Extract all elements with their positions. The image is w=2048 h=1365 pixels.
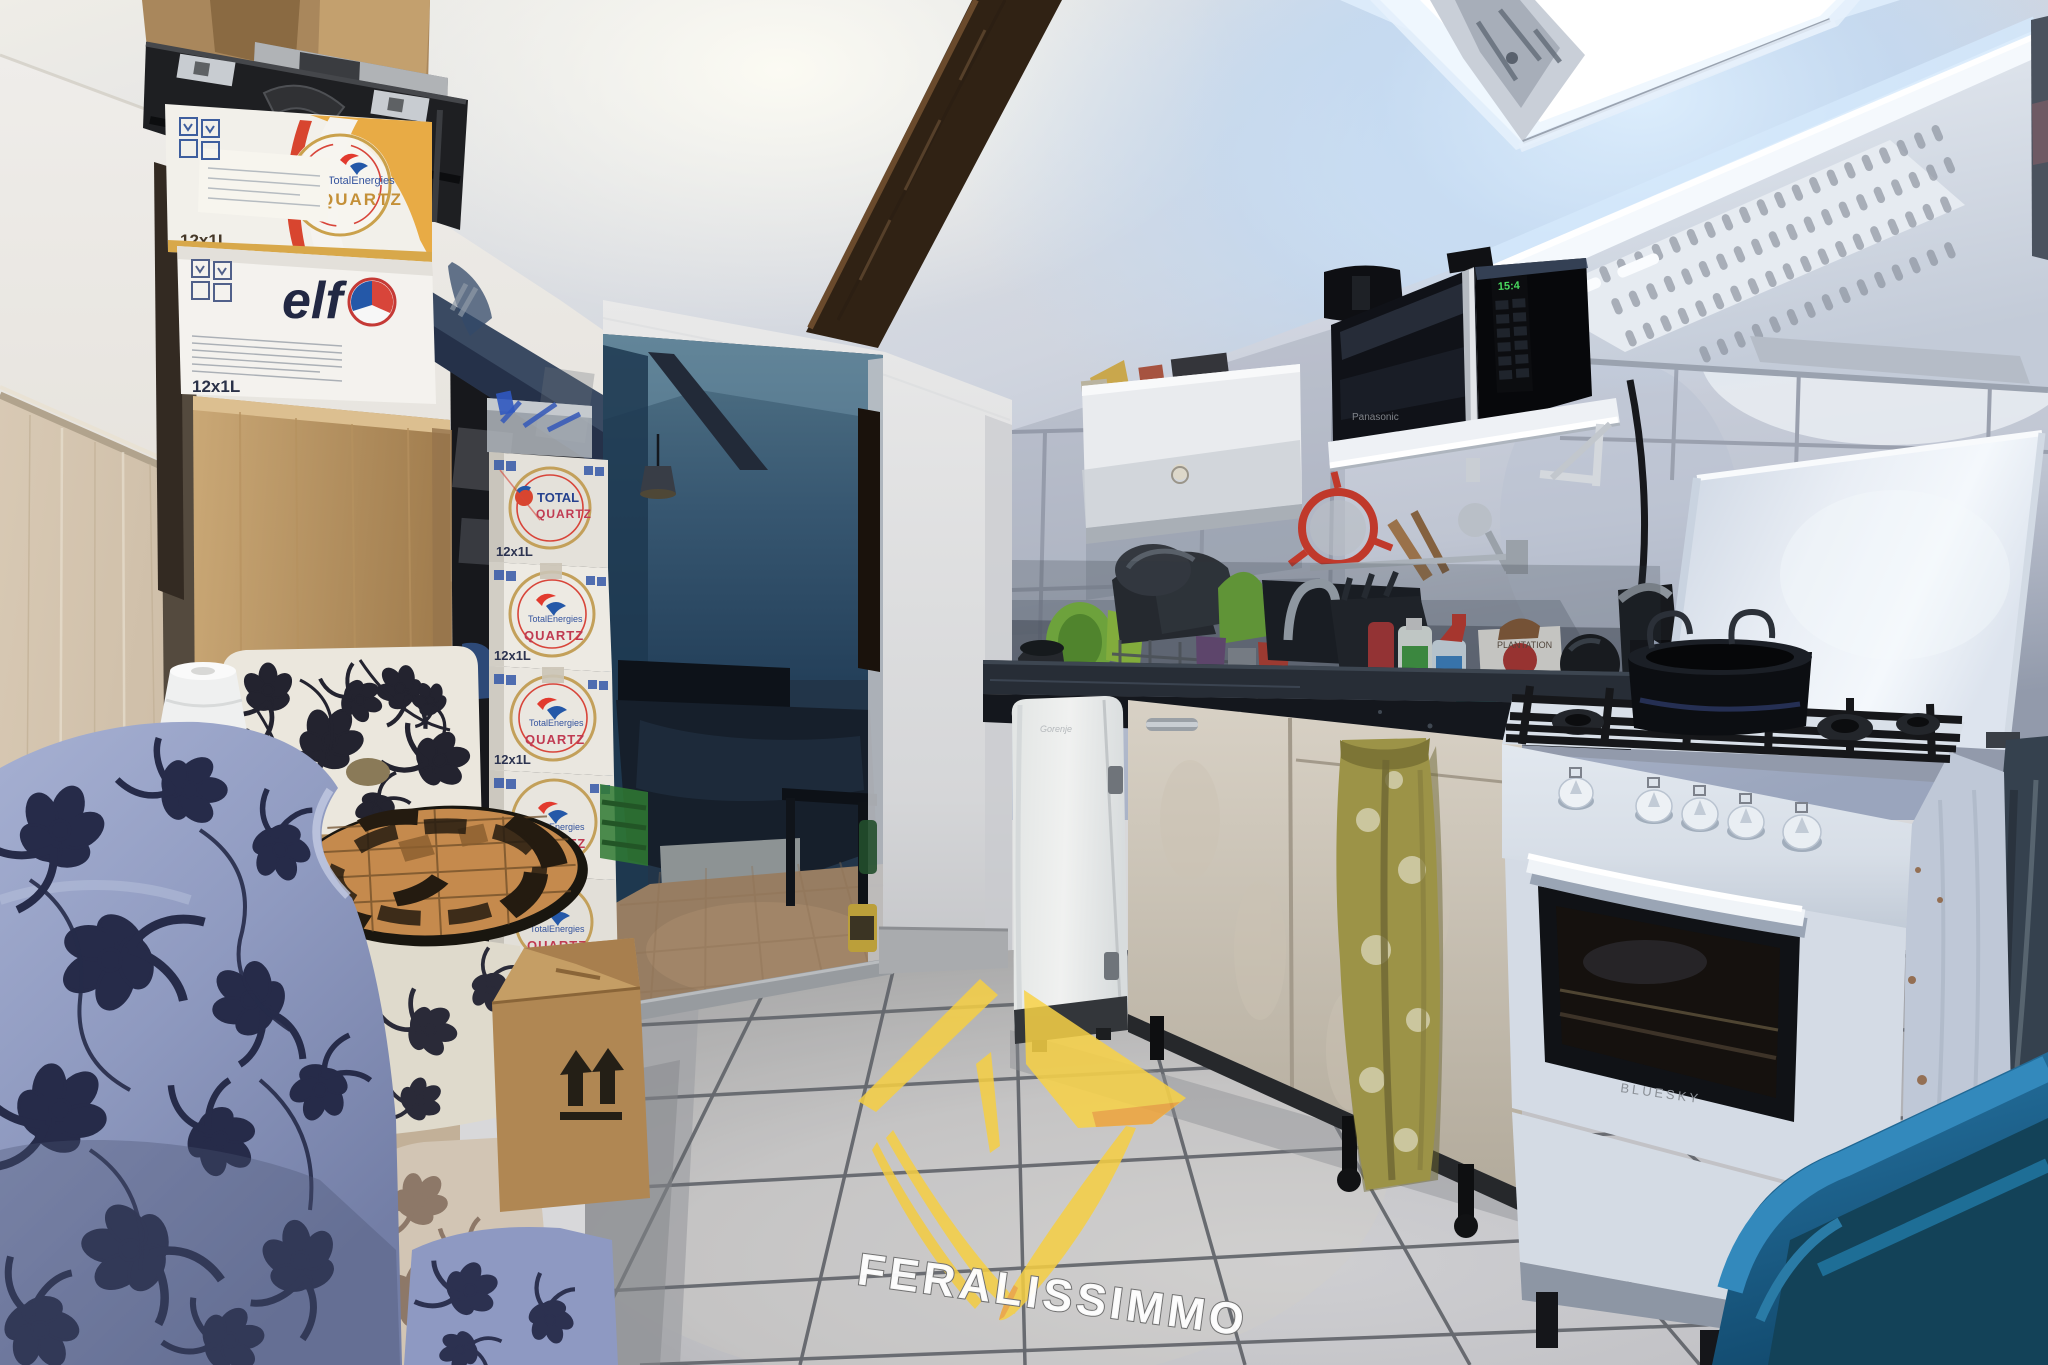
svg-text:QUARTZ: QUARTZ bbox=[525, 732, 585, 747]
svg-text:12x1L: 12x1L bbox=[494, 648, 531, 663]
svg-text:15:4: 15:4 bbox=[1498, 280, 1521, 293]
svg-text:12x1L: 12x1L bbox=[494, 752, 531, 767]
svg-text:QUARTZ: QUARTZ bbox=[524, 628, 584, 643]
svg-text:TotalEnergies: TotalEnergies bbox=[528, 614, 583, 624]
svg-text:elf: elf bbox=[282, 272, 347, 330]
svg-text:TotalEnergies: TotalEnergies bbox=[328, 175, 395, 187]
svg-text:Gorenje: Gorenje bbox=[1040, 724, 1072, 734]
svg-text:Panasonic: Panasonic bbox=[1352, 412, 1399, 423]
svg-text:TotalEnergies: TotalEnergies bbox=[529, 718, 584, 728]
svg-text:QUARTZ: QUARTZ bbox=[320, 190, 403, 209]
svg-text:TotalEnergies: TotalEnergies bbox=[530, 924, 585, 934]
svg-text:QUARTZ: QUARTZ bbox=[536, 507, 592, 521]
svg-text:12x1L: 12x1L bbox=[192, 377, 240, 396]
svg-text:TOTAL: TOTAL bbox=[537, 490, 579, 505]
svg-text:12x1L: 12x1L bbox=[496, 544, 533, 559]
